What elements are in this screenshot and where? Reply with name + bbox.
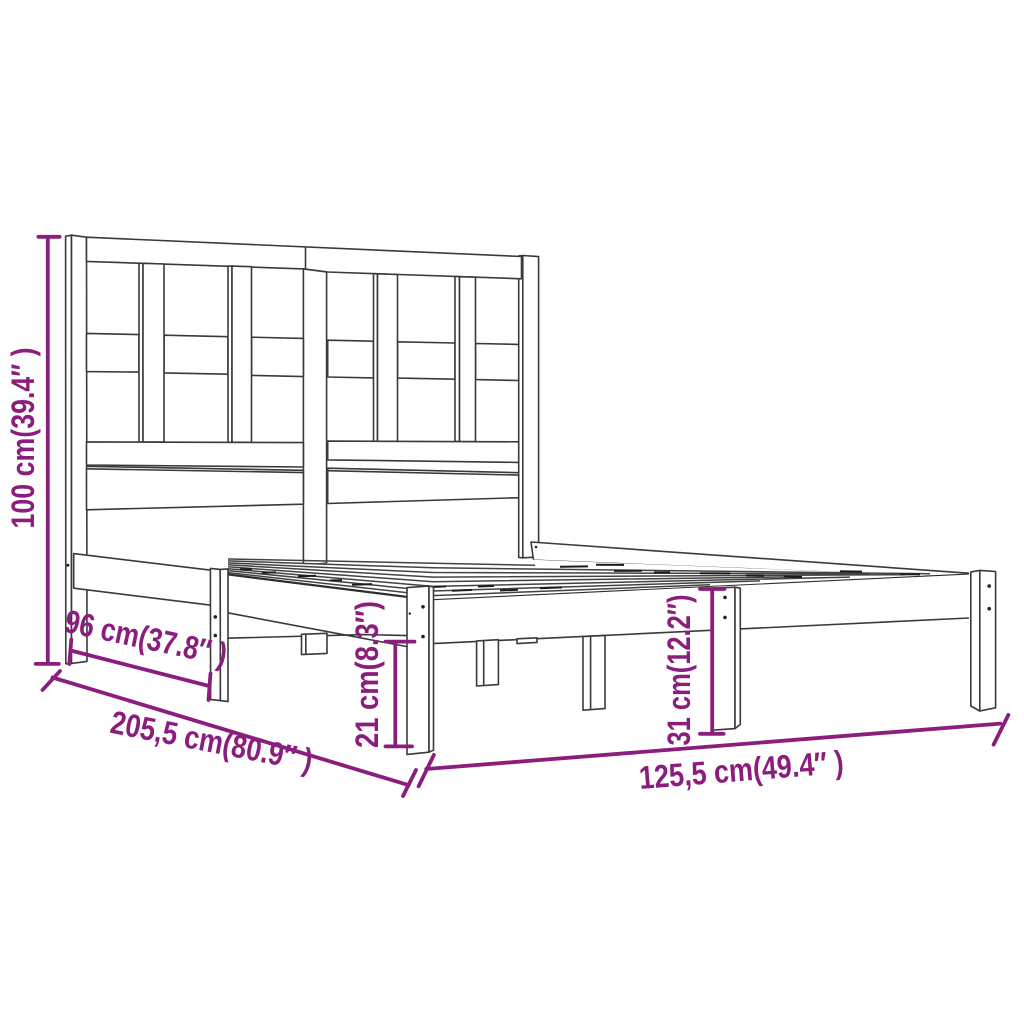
svg-text:100 cm(39.4″ ): 100 cm(39.4″ )	[5, 348, 41, 529]
svg-text:31 cm(12.2″): 31 cm(12.2″)	[661, 595, 697, 746]
svg-text:21 cm(8.3″): 21 cm(8.3″)	[349, 601, 385, 748]
